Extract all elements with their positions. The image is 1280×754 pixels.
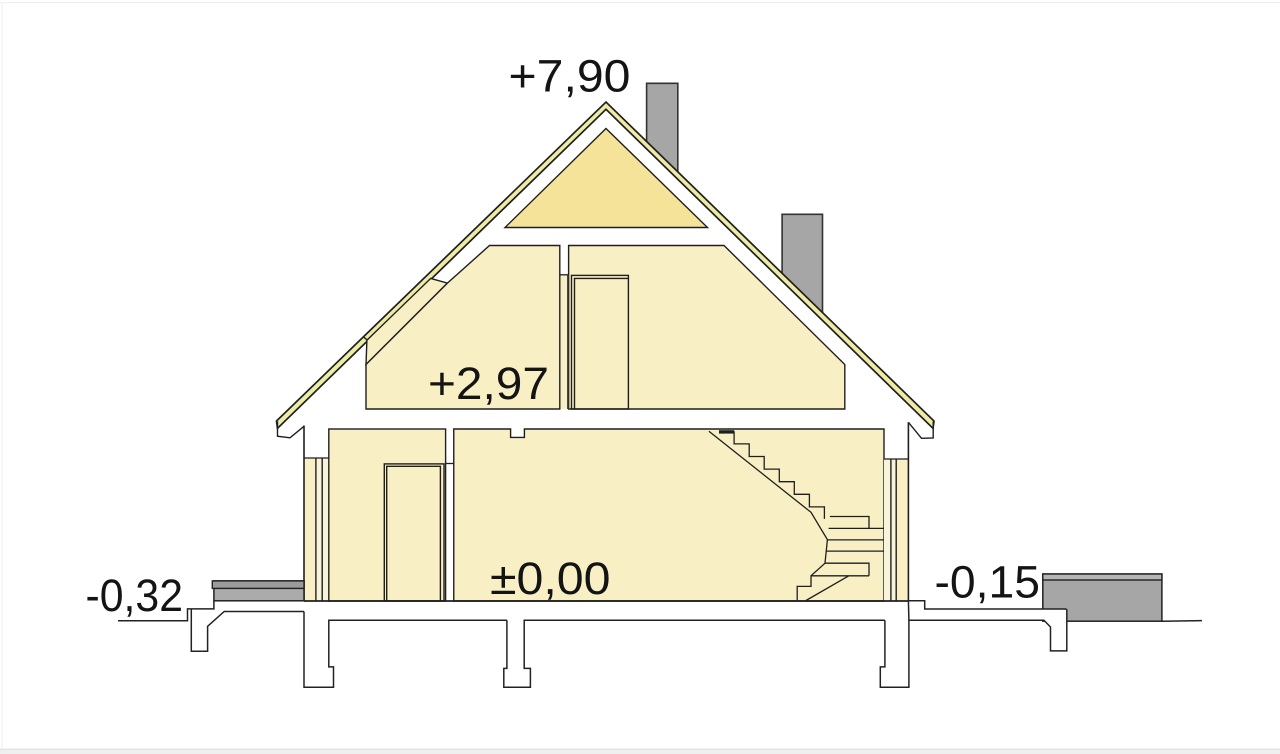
svg-text:±0,00: ±0,00: [490, 553, 611, 604]
svg-text:-0,32: -0,32: [86, 570, 184, 621]
svg-text:+2,97: +2,97: [428, 358, 549, 409]
svg-text:-0,15: -0,15: [935, 557, 1041, 608]
svg-text:+7,90: +7,90: [509, 51, 631, 102]
